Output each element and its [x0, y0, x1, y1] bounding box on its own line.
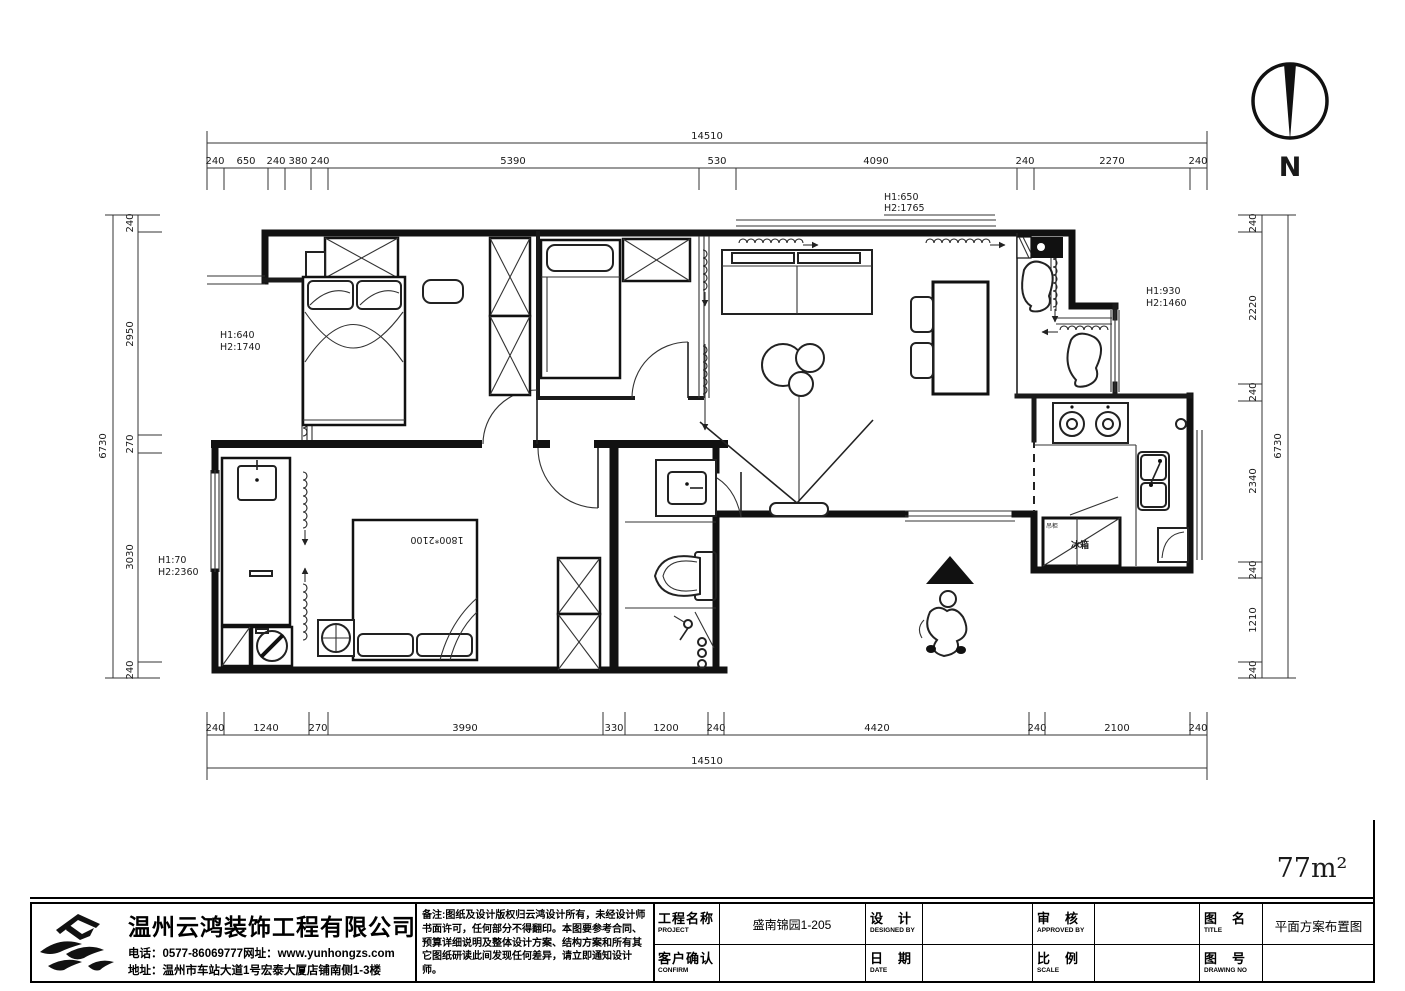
wardrobe-column-icon — [490, 238, 530, 395]
field-label: 审 核 — [1037, 908, 1094, 927]
dim: 240 — [266, 156, 285, 167]
master-bedroom-door — [483, 390, 537, 444]
field-label-en: DATE — [870, 967, 922, 974]
nightstand-icon — [423, 280, 463, 303]
field-label: 图 号 — [1204, 948, 1262, 967]
drawing-title-value: 平面方案布置图 — [1262, 916, 1375, 935]
gas-point-icon — [1176, 419, 1186, 429]
dim: 240 — [1027, 723, 1046, 734]
dining-table-icon — [911, 282, 988, 394]
dim: 240 — [205, 156, 224, 167]
company-name: 温州云鸿装饰工程有限公司 — [128, 908, 418, 942]
window-label: H1:70 — [158, 555, 186, 566]
north-label: N — [1279, 152, 1302, 183]
divider — [1094, 904, 1095, 981]
wardrobe-icon — [306, 238, 398, 278]
dim: 3990 — [452, 723, 477, 734]
field-label-en: SCALE — [1037, 967, 1094, 974]
bedroom3-door — [538, 448, 598, 508]
dim: 4090 — [863, 156, 888, 167]
window-label: H2:1460 — [1146, 298, 1187, 309]
bedroom2-door — [632, 342, 688, 398]
kitchen: 冰箱 吊柜 — [1034, 403, 1188, 566]
area-label: 77m² — [1277, 853, 1348, 884]
dim: 1210 — [1248, 607, 1259, 632]
field-label: 比 例 — [1037, 948, 1094, 967]
ac-unit-icon — [1017, 237, 1063, 258]
laundry-balcony — [222, 458, 292, 666]
vanity-sink-icon — [656, 460, 716, 516]
dim: 240 — [1248, 560, 1259, 579]
dim: 240 — [1188, 156, 1207, 167]
dim: 3030 — [125, 544, 136, 569]
single-bed-icon — [541, 240, 620, 378]
field-drawing-no: 图 号 DRAWING NO — [1199, 948, 1262, 974]
dim: 650 — [236, 156, 255, 167]
field-project: 工程名称 PROJECT — [653, 908, 719, 934]
field-label-en: APPROVED BY — [1037, 927, 1094, 934]
cabinet-icon — [222, 627, 250, 666]
field-date: 日 期 DATE — [865, 948, 922, 974]
dim-left-total: 6730 — [98, 433, 109, 458]
north-arrow: N — [1253, 64, 1327, 183]
dim: 2270 — [1099, 156, 1124, 167]
notes-block: 备注:图纸及设计版权归云鸿设计所有，未经设计师 书面许可，任何部分不得翻印。本图… — [422, 909, 648, 978]
wardrobe-icon — [623, 239, 690, 281]
dim: 330 — [604, 723, 623, 734]
double-bed-icon — [303, 277, 405, 425]
dim-right-total: 6730 — [1273, 433, 1284, 458]
person-figure — [919, 591, 966, 656]
bedroom3: 1800*2100 — [318, 520, 600, 670]
armchair-icon — [1022, 262, 1053, 312]
field-label: 客户确认 — [658, 948, 719, 967]
field-label-en: DESIGNED BY — [870, 927, 922, 934]
project-value: 盛南锦园1-205 — [719, 916, 865, 933]
wardrobe-icon — [558, 558, 600, 670]
window-label: H1:650 — [884, 192, 919, 203]
dim: 2950 — [125, 321, 136, 346]
dim-top-total: 14510 — [691, 131, 723, 142]
window-label: H1:640 — [220, 330, 255, 341]
field-label: 设 计 — [870, 908, 922, 927]
dim: 240 — [706, 723, 725, 734]
laundry-cabinet-icon — [222, 458, 290, 625]
floor-lamp-lines — [700, 420, 873, 516]
field-label-en: TITLE — [1204, 927, 1262, 934]
master-bedroom — [303, 238, 530, 425]
field-designed: 设 计 DESIGNED BY — [865, 908, 922, 934]
note-line: 预算详细说明及整体设计方案、结构方案和所有其 — [422, 937, 648, 951]
bed-icon: 1800*2100 — [353, 520, 477, 660]
dim: 530 — [707, 156, 726, 167]
dimension-chain-bottom: 14510 240 1240 270 3990 330 1200 240 442… — [205, 712, 1207, 780]
dim: 270 — [125, 434, 136, 453]
dimension-chain-right: 6730 240 2220 240 2340 240 1210 240 — [1238, 213, 1296, 679]
dim: 240 — [125, 660, 136, 679]
bedroom2 — [541, 239, 690, 378]
dim: 240 — [125, 213, 136, 232]
note-line: 备注:图纸及设计版权归云鸿设计所有，未经设计师 — [422, 909, 648, 923]
window-label: H1:930 — [1146, 286, 1181, 297]
bed-size-label: 1800*2100 — [410, 534, 463, 545]
fridge-icon: 冰箱 吊柜 — [1043, 497, 1120, 566]
dim-bottom-total: 14510 — [691, 756, 723, 767]
dim: 1240 — [253, 723, 278, 734]
dim: 240 — [1015, 156, 1034, 167]
dim: 2100 — [1104, 723, 1129, 734]
drawing-sheet: 14510 240 650 240 380 240 5390 530 4090 … — [0, 0, 1405, 991]
dimension-chain-left: 6730 240 2950 270 3030 240 — [98, 213, 162, 679]
dim: 240 — [1248, 213, 1259, 232]
dim: 380 — [288, 156, 307, 167]
field-label: 图 名 — [1204, 908, 1262, 927]
field-confirm: 客户确认 CONFIRM — [653, 948, 719, 974]
dim: 240 — [1248, 382, 1259, 401]
washing-machine-icon — [252, 627, 292, 666]
armchair-icon — [1067, 334, 1101, 387]
dim: 240 — [1188, 723, 1207, 734]
shower-icon — [674, 612, 714, 668]
field-scale: 比 例 SCALE — [1032, 948, 1094, 974]
sofa-icon — [722, 250, 872, 314]
title-block-top-rule — [30, 897, 1375, 899]
plant-icon — [762, 344, 824, 503]
dim: 2340 — [1248, 468, 1259, 493]
dim: 240 — [310, 156, 329, 167]
field-title: 图 名 TITLE — [1199, 908, 1262, 934]
dim: 240 — [205, 723, 224, 734]
entry-arrow-icon — [926, 556, 974, 584]
dim: 4420 — [864, 723, 889, 734]
entry — [919, 556, 974, 656]
dim: 1200 — [653, 723, 678, 734]
window-label: H2:2360 — [158, 567, 199, 578]
company-phone-web: 电话：0577-86069777网址：www.yunhongzs.com — [128, 945, 428, 961]
note-line: 它图纸研读此间发现任何差异，请立即通知设计师。 — [422, 950, 648, 978]
fridge-label: 冰箱 — [1071, 539, 1089, 551]
corner-shelf-icon — [1158, 528, 1188, 562]
field-label: 日 期 — [870, 948, 922, 967]
field-label-en: CONFIRM — [658, 967, 719, 974]
field-label-en: DRAWING NO — [1204, 967, 1262, 974]
dim: 2220 — [1248, 295, 1259, 320]
field-label: 工程名称 — [658, 908, 719, 927]
title-block: 温州云鸿装饰工程有限公司 电话：0577-86069777网址：www.yunh… — [30, 902, 1375, 983]
stool-fan-icon — [318, 620, 354, 656]
dimension-chain-top: 14510 240 650 240 380 240 5390 530 4090 … — [205, 131, 1207, 190]
field-label-en: PROJECT — [658, 927, 719, 934]
window-label: H2:1740 — [220, 342, 261, 353]
divider — [653, 944, 1373, 945]
company-address: 地址：温州市车站大道1号宏泰大厦店铺南侧1-3楼 — [128, 962, 428, 978]
kitchen-sink-icon — [1138, 452, 1169, 510]
toilet-icon — [655, 552, 716, 600]
fridge-cabinet-label: 吊柜 — [1046, 522, 1058, 530]
dim: 240 — [1248, 660, 1259, 679]
stove-icon — [1053, 403, 1128, 443]
dim: 5390 — [500, 156, 525, 167]
divider — [922, 904, 923, 981]
living-room — [700, 237, 1063, 516]
field-approved: 审 核 APPROVED BY — [1032, 908, 1094, 934]
floor-plan-drawing: 14510 240 650 240 380 240 5390 530 4090 … — [0, 0, 1405, 991]
window-label: H2:1765 — [884, 203, 925, 214]
dim: 270 — [308, 723, 327, 734]
bathroom — [625, 460, 716, 668]
note-line: 书面许可，任何部分不得翻印。本图要参考合同、 — [422, 923, 648, 937]
